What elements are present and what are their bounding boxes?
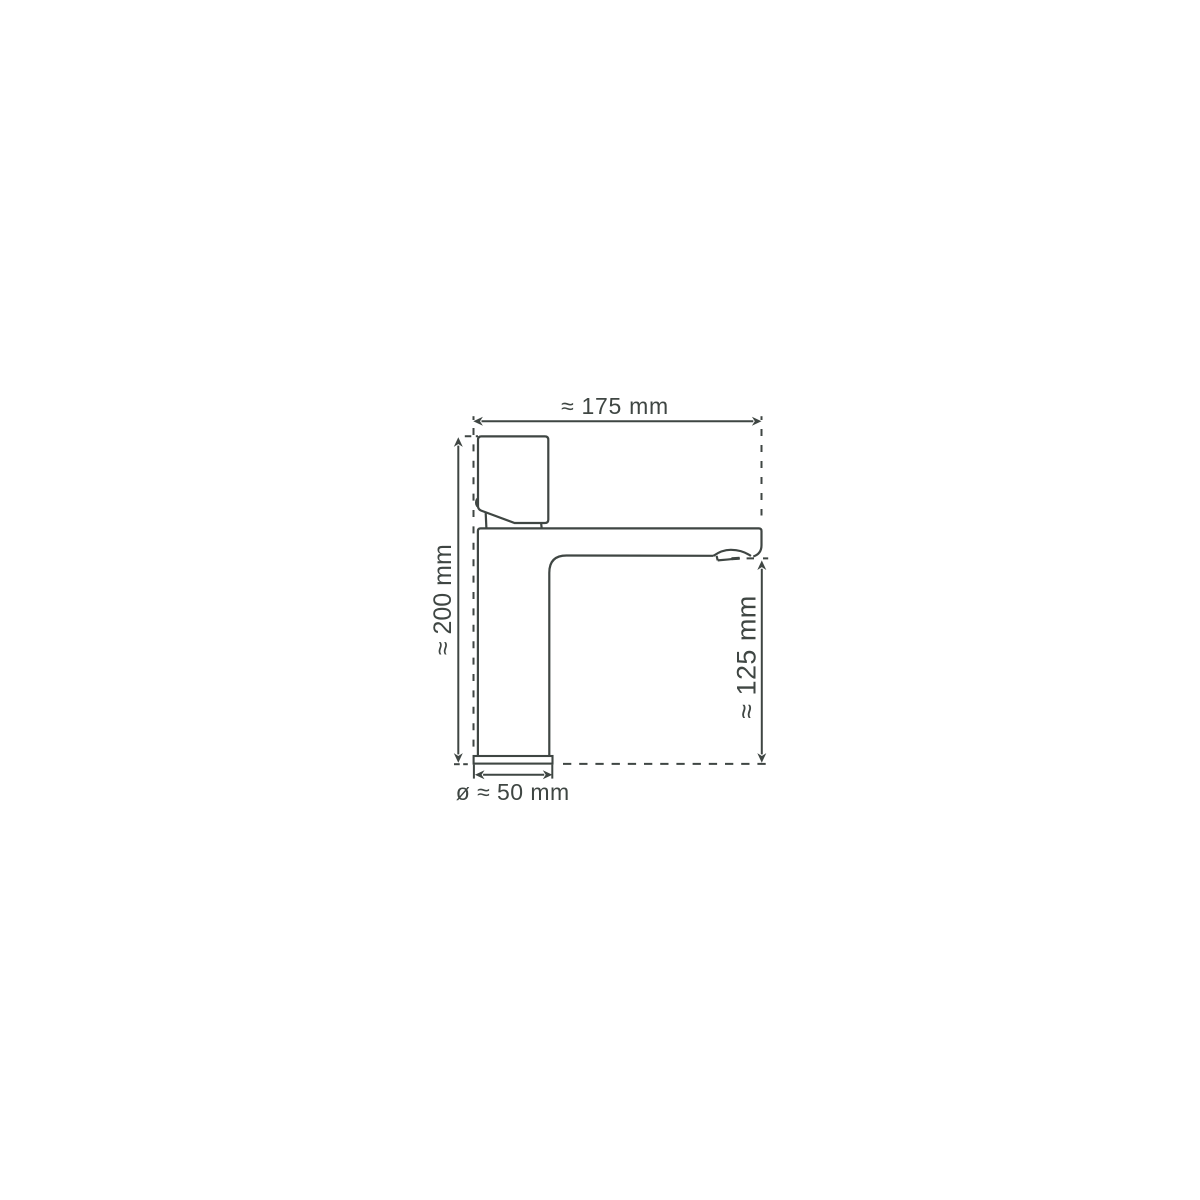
svg-text:≈ 175 mm: ≈ 175 mm — [561, 393, 669, 419]
svg-text:≈ 200 mm: ≈ 200 mm — [429, 544, 457, 655]
svg-text:ø ≈ 50 mm: ø ≈ 50 mm — [456, 779, 570, 805]
svg-text:≈ 125 mm: ≈ 125 mm — [731, 595, 761, 718]
